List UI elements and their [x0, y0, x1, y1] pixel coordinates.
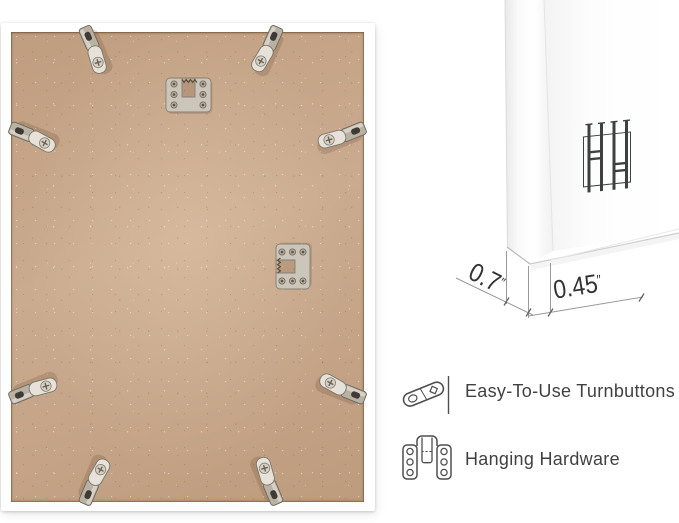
- hanging-hardware-icon: [403, 436, 451, 479]
- frame-corner-profile: [505, 0, 679, 270]
- feature-label-hanging-hardware: Hanging Hardware: [465, 449, 620, 469]
- graphics-overlay: [0, 0, 679, 523]
- turnbutton-icon: [402, 376, 449, 414]
- feature-label-turnbuttons: Easy-To-Use Turnbuttons: [465, 381, 675, 401]
- sawtooth-hanger-hardware: [166, 78, 312, 289]
- product-image: 0.7″ 0.45″ Easy-To-Use Turnbuttons Hangi…: [0, 0, 679, 523]
